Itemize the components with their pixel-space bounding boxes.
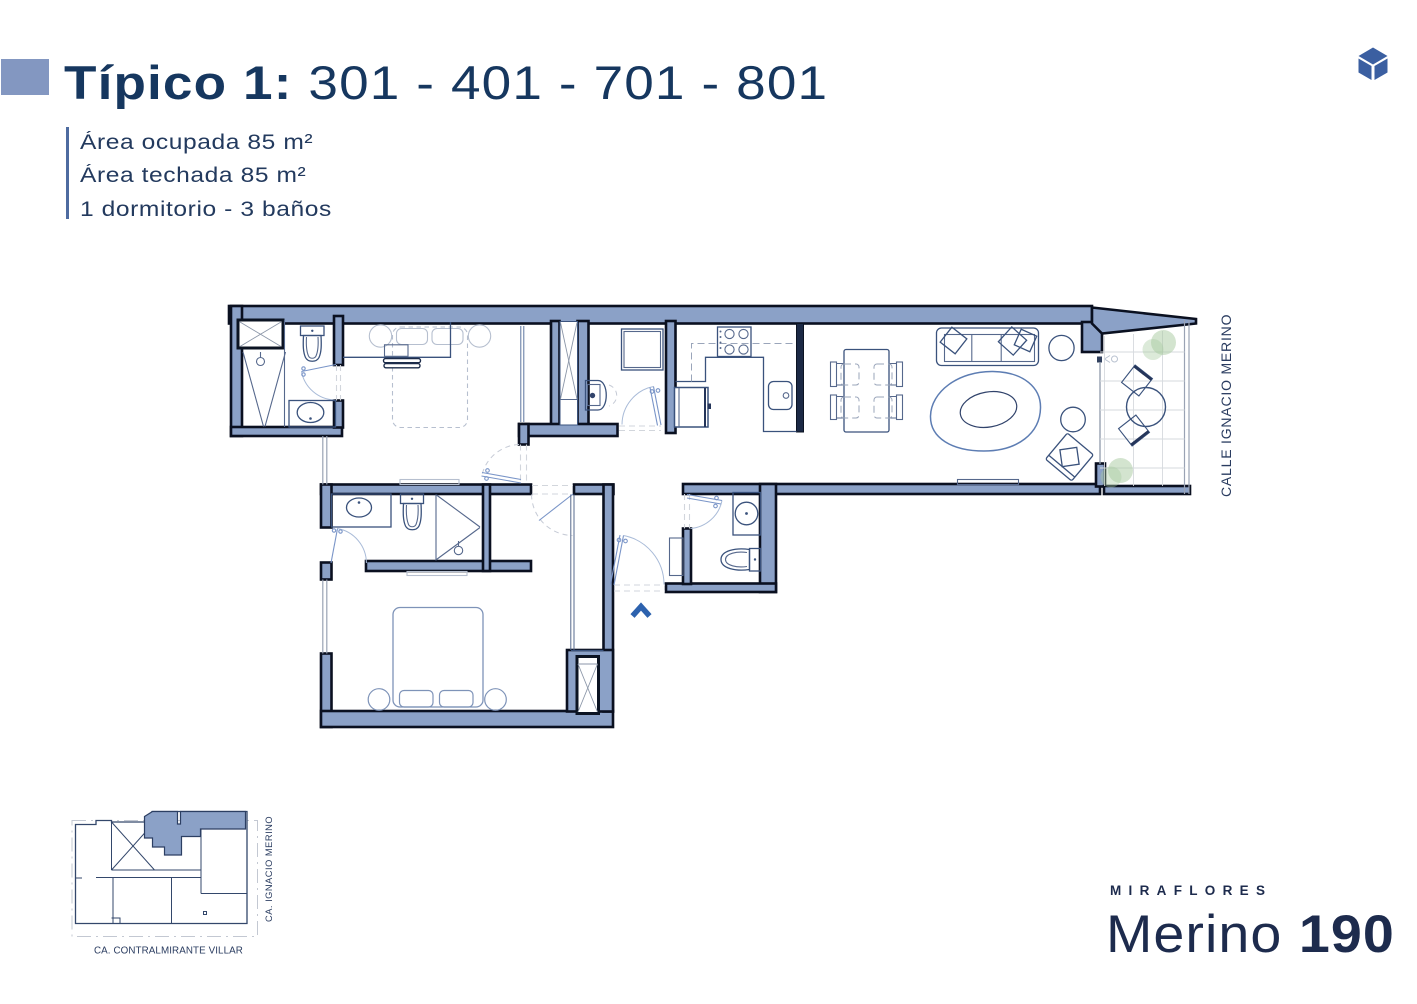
svg-text:CA. CONTRALMIRANTE VILLAR: CA. CONTRALMIRANTE VILLAR: [94, 946, 243, 957]
svg-text:CALLE IGNACIO MERINO: CALLE IGNACIO MERINO: [1218, 314, 1234, 497]
svg-text:CA. IGNACIO MERINO: CA. IGNACIO MERINO: [264, 816, 274, 922]
